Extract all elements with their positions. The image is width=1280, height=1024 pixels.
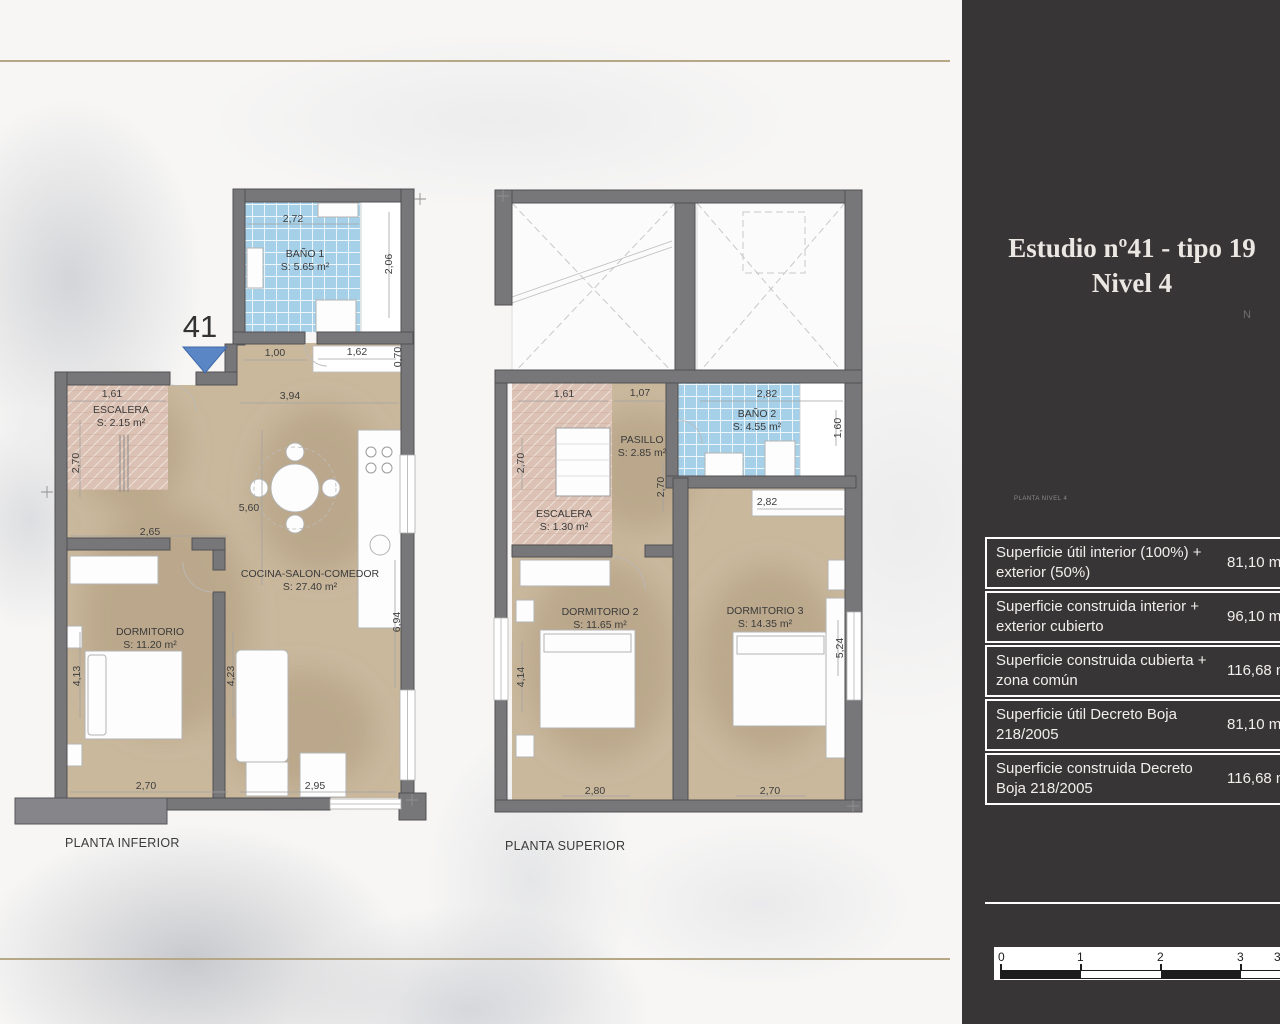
sidebar-title: Estudio nº41 - tipo 19 Nivel 4 (962, 231, 1280, 301)
row-label: Superficie útil Decreto Boja 218/2005 (996, 705, 1218, 745)
dim-label: 2,82 (757, 388, 777, 400)
dim-label: 2,72 (283, 213, 303, 225)
plan-superior (494, 190, 862, 812)
room-label-pasillo: PASILLO S: 2.85 m² (618, 434, 666, 460)
plan-inferior (15, 189, 426, 824)
room-label-dormitorio2: DORMITORIO 2 S: 11.65 m² (562, 606, 639, 632)
table-row: Superficie útil Decreto Boja 218/2005 81… (985, 699, 1280, 751)
row-value: 116,68 m² (1227, 661, 1280, 681)
plan-caption-inferior: PLANTA INFERIOR (65, 836, 180, 850)
row-value: 116,68 m² (1227, 769, 1280, 789)
dim-label: 1,62 (347, 346, 367, 358)
scale-label: 2 (1157, 950, 1164, 964)
unit-number-marker: 41 (183, 309, 217, 345)
row-value: 81,10 m² (1227, 715, 1280, 735)
room-label-bano2: BAÑO 2 S: 4.55 m² (733, 408, 781, 434)
dim-label: 1,61 (102, 388, 122, 400)
dim-label: 2,70 (760, 785, 780, 797)
dim-label: 2,70 (515, 453, 527, 473)
scale-label: 3 (1237, 950, 1244, 964)
dim-label: 1,61 (554, 388, 574, 400)
scale-label: 1 (1077, 950, 1084, 964)
compass-north-label: N (1243, 309, 1251, 321)
dim-label: 5,24 (834, 638, 846, 658)
scale-label: 3,5 (1274, 950, 1280, 964)
dim-label: 2,65 (140, 526, 160, 538)
table-row: Superficie construida interior + exterio… (985, 591, 1280, 643)
room-label-dormitorio: DORMITORIO S: 11.20 m² (116, 626, 184, 652)
row-label: Superficie útil interior (100%) + exteri… (996, 543, 1218, 583)
dim-label: 1,00 (265, 347, 285, 359)
title-line2: Nivel 4 (962, 266, 1280, 301)
table-row: Superficie construida Decreto Boja 218/2… (985, 753, 1280, 805)
dim-label: 4,23 (225, 666, 237, 686)
dim-label: 2,70 (70, 453, 82, 473)
scale-bar: 0 1 2 3 3,5 (994, 947, 1280, 980)
row-label: Superficie construida cubierta + zona co… (996, 651, 1218, 691)
dim-label: 0,70 (392, 347, 404, 367)
dim-label: 2,70 (655, 477, 667, 497)
room-label-dormitorio3: DORMITORIO 3 S: 14.35 m² (727, 605, 804, 631)
dim-label: 2,70 (136, 780, 156, 792)
room-label-escalera: ESCALERA S: 2.15 m² (93, 404, 149, 430)
dim-label: 6,94 (391, 612, 403, 632)
room-label-cocina: COCINA-SALON-COMEDOR S: 27.40 m² (241, 568, 379, 594)
row-label: Superficie construida Decreto Boja 218/2… (996, 759, 1218, 799)
dim-label: 3,94 (280, 390, 300, 402)
dim-label: 2,82 (757, 496, 777, 508)
title-line1: Estudio nº41 - tipo 19 (962, 231, 1280, 266)
dim-label: 4,13 (71, 666, 83, 686)
siteplan-caption: PLANTA NIVEL 4 (1014, 496, 1067, 502)
room-label-bano1: BAÑO 1 S: 5.65 m² (281, 248, 329, 274)
row-value: 96,10 m² (1227, 607, 1280, 627)
dim-label: 2,95 (305, 780, 325, 792)
row-value: 81,10 m² (1227, 553, 1280, 573)
dim-label: 2,80 (585, 785, 605, 797)
surface-table: Superficie útil interior (100%) + exteri… (985, 537, 1280, 807)
plan-caption-superior: PLANTA SUPERIOR (505, 839, 625, 853)
dim-label: 5,60 (239, 502, 259, 514)
dim-label: 4,14 (515, 667, 527, 687)
table-row: Superficie construida cubierta + zona co… (985, 645, 1280, 697)
sidebar-panel (962, 0, 1280, 1024)
sidebar-divider (985, 902, 1280, 904)
scale-label: 0 (998, 950, 1005, 964)
row-label: Superficie construida interior + exterio… (996, 597, 1218, 637)
dim-label: 1,60 (832, 418, 844, 438)
dim-label: 1,07 (630, 387, 650, 399)
room-label-escalera2: ESCALERA S: 1.30 m² (536, 508, 592, 534)
dim-label: 2,06 (383, 254, 395, 274)
unit-marker-arrow (183, 347, 227, 373)
table-row: Superficie útil interior (100%) + exteri… (985, 537, 1280, 589)
